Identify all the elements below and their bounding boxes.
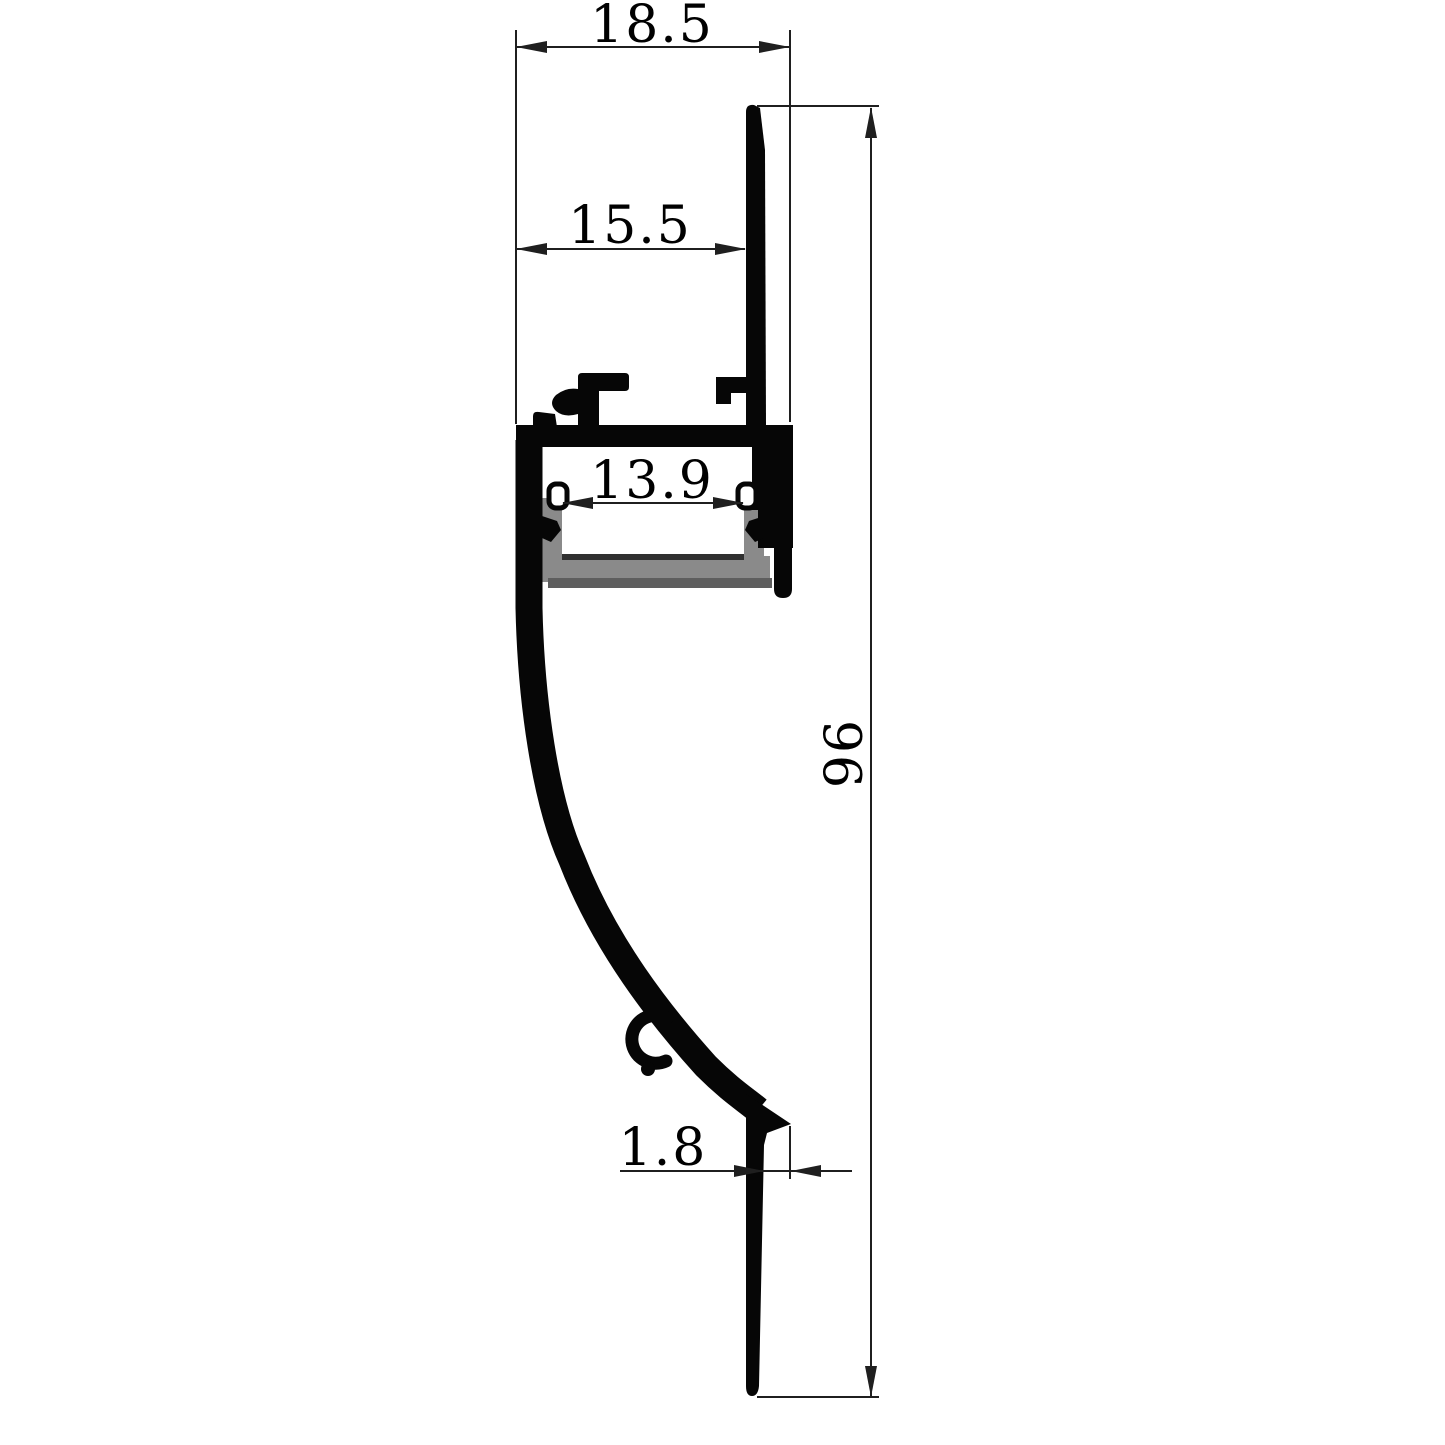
arrow-96-bottom <box>865 1366 877 1397</box>
cable-hook-tip <box>641 1062 655 1076</box>
dim-channel-width-label: 13.9 <box>590 451 714 511</box>
channel-floor-line <box>562 554 744 560</box>
profile-wall-plate <box>746 105 766 425</box>
dimension-labels: 18.5 15.5 13.9 96 1.8 <box>568 0 875 1178</box>
bottom-edge-plate <box>746 1094 791 1396</box>
dim-height-label: 96 <box>815 718 875 788</box>
diffuser-left-cap <box>549 484 567 508</box>
left-clip-arm <box>578 373 629 427</box>
arrow-1-8-right <box>791 1165 821 1177</box>
profile-technical-drawing: 18.5 15.5 13.9 96 1.8 <box>0 0 1445 1445</box>
profile-top-flange <box>516 425 793 447</box>
dim-top-width-label: 18.5 <box>590 0 714 55</box>
right-channel-foot <box>774 545 792 598</box>
left-clip-foot <box>533 412 557 427</box>
arrow-18-5-left <box>516 41 547 53</box>
arrow-15-5-left <box>516 243 547 255</box>
diffuser-retainer-nubs <box>542 516 764 542</box>
dim-flange-width-label: 15.5 <box>568 196 692 256</box>
profile-outline <box>516 105 793 1396</box>
drawing-canvas: 18.5 15.5 13.9 96 1.8 <box>0 0 1445 1445</box>
arrow-15-5-right <box>715 243 746 255</box>
diffuser-right-cap <box>738 484 756 508</box>
arrow-18-5-right <box>759 41 790 53</box>
cable-hook <box>632 1015 667 1063</box>
dim-thickness-label: 1.8 <box>619 1118 708 1178</box>
curved-arm <box>529 440 758 1110</box>
right-clip-arm <box>716 377 747 404</box>
diffuser-tray-shadow <box>548 578 772 588</box>
arrow-96-top <box>865 107 877 138</box>
left-clip-hook <box>552 389 578 416</box>
